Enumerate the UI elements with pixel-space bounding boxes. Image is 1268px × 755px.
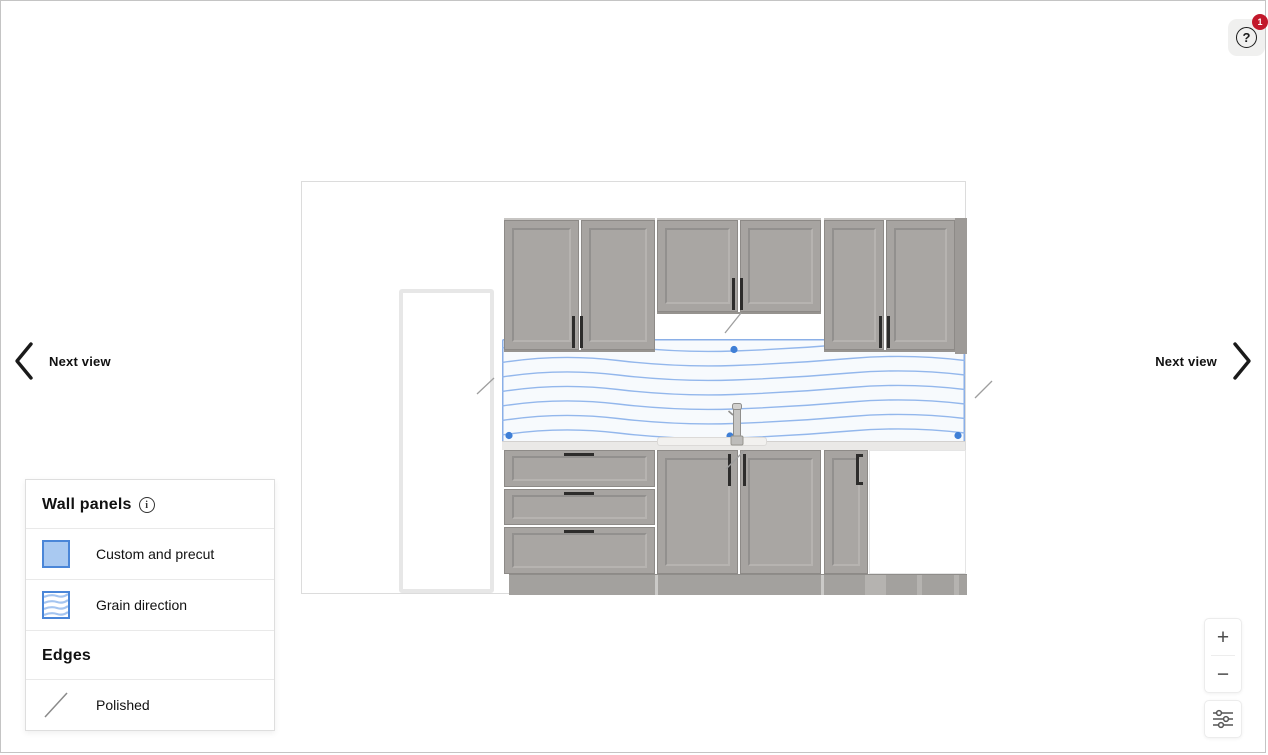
previous-view-label: Next view: [49, 354, 111, 369]
panel-handle-bottom-right[interactable]: [954, 432, 961, 439]
help-icon: ?: [1236, 27, 1257, 48]
wall-cabinet-left[interactable]: [504, 218, 655, 352]
cabinet-door: [886, 220, 955, 350]
next-view-button[interactable]: Next view: [1155, 341, 1253, 381]
cabinet-door: [504, 220, 579, 350]
base-cabinet-narrow[interactable]: [824, 450, 868, 574]
legend-panel: Wall panels i Custom and precut Grain di…: [25, 479, 275, 731]
cabinet-door: [657, 450, 738, 574]
side-cover-panel: [955, 218, 967, 354]
legend-item-label: Polished: [96, 697, 150, 713]
panel-handle-top[interactable]: [730, 346, 737, 353]
legend-title: Wall panels: [42, 496, 132, 514]
zoom-controls: + −: [1204, 618, 1242, 693]
toe-kick: [509, 574, 967, 595]
help-button[interactable]: ? 1: [1228, 19, 1265, 56]
zoom-in-button[interactable]: +: [1205, 619, 1241, 655]
door-handle: [732, 278, 735, 310]
legend-edges-title: Edges: [42, 647, 91, 665]
door-handle: [572, 316, 575, 348]
chevron-right-icon: [1231, 341, 1253, 381]
info-icon[interactable]: i: [139, 497, 155, 513]
wall-cabinet-right[interactable]: [824, 218, 955, 352]
drawer-handle: [564, 453, 594, 456]
view-settings-button[interactable]: [1204, 700, 1242, 738]
base-sink-cabinet[interactable]: [657, 450, 821, 574]
drawer-handle: [564, 492, 594, 495]
legend-item-custom-precut: Custom and precut: [26, 528, 274, 579]
door-handle: [740, 278, 743, 310]
drawer: [504, 450, 655, 487]
drawer: [504, 489, 655, 525]
sink: [657, 437, 767, 446]
planner-canvas: ? 1 Next view Next view: [0, 0, 1266, 753]
notification-badge: 1: [1252, 14, 1268, 30]
tall-cabinet-outline[interactable]: [399, 289, 494, 593]
door-handle: [580, 316, 583, 348]
filled-swatch-icon: [42, 540, 70, 568]
cabinet-door: [824, 220, 884, 350]
cabinet-door: [740, 220, 821, 312]
legend-item-grain-direction: Grain direction: [26, 579, 274, 630]
legend-edges-header: Edges: [26, 630, 274, 679]
legend-item-label: Custom and precut: [96, 546, 214, 562]
door-handle: [887, 316, 890, 348]
door-handle: [743, 454, 746, 486]
appliance-gap[interactable]: [869, 450, 966, 574]
cabinet-door: [581, 220, 656, 350]
legend-item-polished: Polished: [26, 679, 274, 730]
next-view-label: Next view: [1155, 354, 1217, 369]
door-handle: [879, 316, 882, 348]
cabinet-door: [740, 450, 821, 574]
drawer-handle: [564, 530, 594, 533]
door-handle: [728, 454, 731, 486]
polished-edge-swatch-icon: [42, 691, 70, 719]
panel-handle-bottom-left[interactable]: [505, 432, 512, 439]
grain-swatch-icon: [42, 591, 70, 619]
previous-view-button[interactable]: Next view: [13, 341, 111, 381]
faucet: [726, 402, 748, 446]
drawer: [504, 527, 655, 574]
base-drawer-unit[interactable]: [504, 450, 655, 574]
cabinet-door: [657, 220, 738, 312]
zoom-out-button[interactable]: −: [1205, 656, 1241, 692]
sliders-icon: [1212, 708, 1234, 730]
legend-item-label: Grain direction: [96, 597, 187, 613]
legend-header: Wall panels i: [26, 480, 274, 528]
door-handle: [856, 454, 863, 485]
elevation-view: [301, 181, 966, 594]
chevron-left-icon: [13, 341, 35, 381]
wall-cabinet-center[interactable]: [657, 218, 821, 314]
